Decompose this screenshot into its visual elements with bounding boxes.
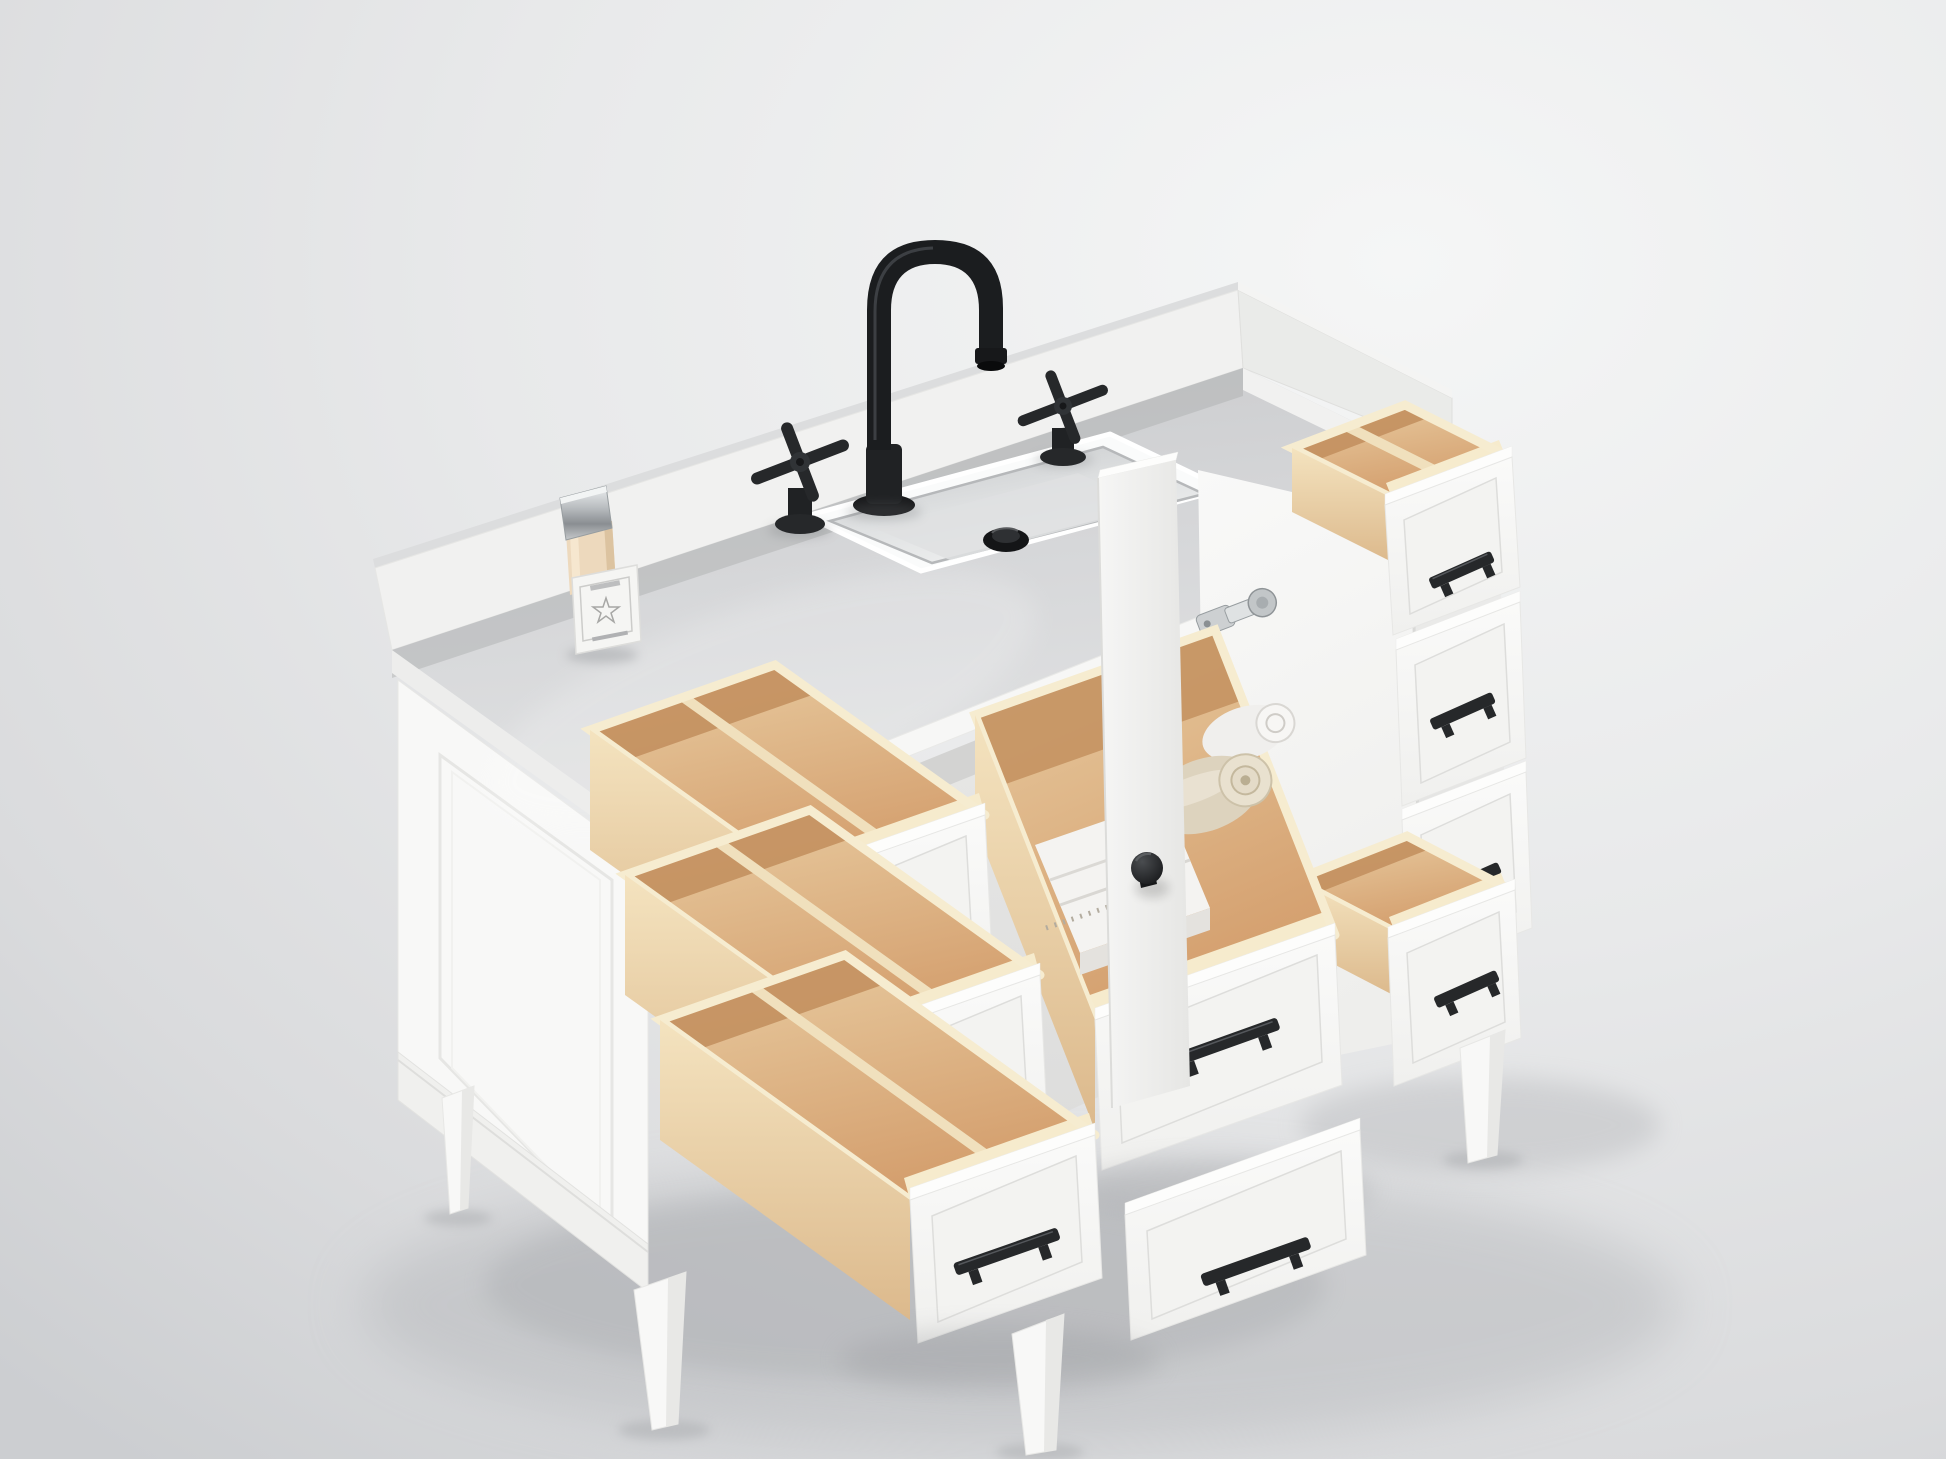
sink-drain (983, 528, 1029, 552)
cabinet-door-edge (1098, 452, 1190, 1108)
product-render (0, 0, 1946, 1459)
bottle-label (572, 565, 641, 654)
